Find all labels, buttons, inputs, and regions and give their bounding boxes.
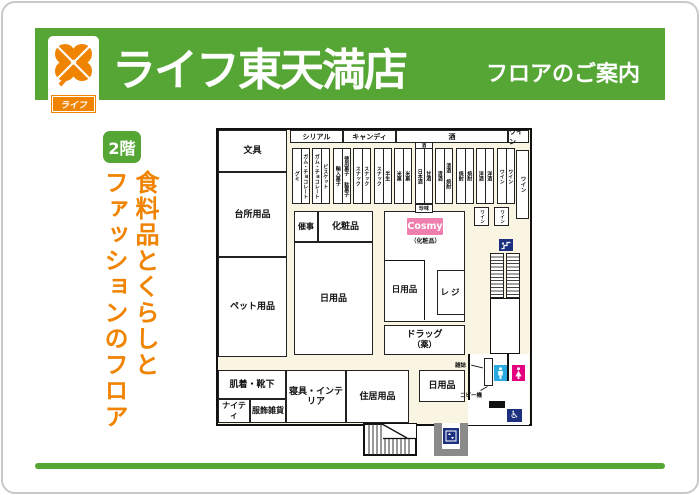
escalator-icon xyxy=(499,239,513,251)
magazine-label: 雑誌 xyxy=(455,361,466,369)
floor-tagline: 食料品とくらしと ファッションのフロア xyxy=(98,170,160,470)
room-household: 住居用品 xyxy=(346,370,409,423)
divider xyxy=(424,260,425,320)
aisle-biscuit: ガム・チョコレートビスケット xyxy=(312,148,330,204)
bottom-green-rule xyxy=(35,463,665,469)
elevator-wall xyxy=(434,423,442,456)
escalator-up xyxy=(506,253,520,298)
room-kitchenware: 台所用品 xyxy=(218,172,287,257)
shelf-wine-small-1: ワイン xyxy=(474,207,489,226)
topbar-sake: 酒 xyxy=(396,130,508,143)
topbar-candy: キャンディ xyxy=(343,130,396,143)
drug-label-line2: （薬） xyxy=(406,340,442,350)
aisle-rice-crackers: 米菓米菓 xyxy=(394,148,412,204)
tagline-line-2: ファッションのフロア xyxy=(98,170,129,470)
room-daily-goods-bottom: 日用品 xyxy=(419,370,465,402)
aisle-shochu: 焼酎焼酎 xyxy=(456,148,474,204)
wall-notch xyxy=(489,401,505,408)
escalator-landing xyxy=(490,298,520,354)
floor-guide-subtitle: フロアのご案内 xyxy=(486,56,640,88)
aisle-gum-chocolate: グミガム・チョコレート xyxy=(292,148,310,204)
room-drugstore: ドラッグ （薬） xyxy=(384,325,465,355)
room-fashion-goods: 服飾雑貨 xyxy=(250,399,286,423)
logo-wordmark: ライフ xyxy=(52,96,95,112)
clover-icon xyxy=(52,41,95,93)
aisle-sake-footer: 珍味 xyxy=(415,204,433,213)
topbar-wine: ワイン xyxy=(508,130,529,143)
aisle-sake: 日本酒甘酒 xyxy=(415,148,433,204)
room-nighty: ナイティ xyxy=(218,399,250,423)
cosmy-logo: Cosmy xyxy=(407,218,443,235)
aisle-western-liquor: 洋酒洋酒 xyxy=(476,148,494,204)
aisle-snack-2: スナック半生 xyxy=(374,148,392,204)
stairs xyxy=(363,423,417,456)
copier-label: コピー機 xyxy=(460,391,482,399)
store-title: ライフ東天満店 xyxy=(112,34,406,98)
room-daily-goods-big: 日用品 xyxy=(294,242,373,355)
room-bedding-interior: 寝具・インテリア xyxy=(286,370,346,423)
aisle-wine: ワインワイン xyxy=(497,148,515,204)
room-pet-goods: ペット用品 xyxy=(218,257,287,357)
room-daily-goods-mid: 日用品 xyxy=(385,260,424,320)
mens-toilet-icon xyxy=(494,365,507,381)
tagline-line-1: 食料品とくらしと xyxy=(129,170,160,470)
floor-plan: シリアル キャンディ 酒 ワイン 文具 台所用品 ペット用品 肌着・靴下 ナイテ… xyxy=(216,128,532,426)
escalator-down xyxy=(490,253,504,298)
wheelchair-icon: ♿ xyxy=(507,409,522,422)
room-cosmetics: 化粧品 xyxy=(318,211,373,242)
drug-label-line1: ドラッグ xyxy=(406,330,442,340)
cosmy-sublabel: （化粧品） xyxy=(385,237,466,247)
aisle-imported-sweets: 輸入菓子徳用菓子 駄菓子 xyxy=(333,148,351,204)
floor-badge: 2階 xyxy=(103,131,141,163)
room-stationery: 文具 xyxy=(218,130,287,172)
topbar-cereal: シリアル xyxy=(290,130,343,143)
shelf-wine-tall: ワイン xyxy=(516,150,529,219)
wall xyxy=(507,354,509,381)
room-register: レジ xyxy=(437,270,465,315)
elevator-wall xyxy=(442,449,460,456)
life-logo: ライフ xyxy=(48,36,99,116)
shelf-wine-small-2: ワイン xyxy=(494,207,509,226)
elevator-icon xyxy=(443,428,459,444)
floor-guide-poster: ライフ東天満店 フロアのご案内 ライフ 2階 食料品とくらしと ファッションのフ… xyxy=(0,0,700,495)
room-event-space: 催事 xyxy=(294,211,318,242)
magazine-rack xyxy=(484,358,493,386)
elevator-shaft xyxy=(434,423,468,456)
womens-toilet-icon xyxy=(512,365,525,381)
aisle-seishu: 清酒清酒 焼酎 xyxy=(435,148,453,204)
room-underwear-socks: 肌着・靴下 xyxy=(218,370,286,399)
cosmy-block: Cosmy （化粧品） 日用品 レジ xyxy=(384,211,465,322)
elevator-wall xyxy=(460,423,468,456)
aisle-snack-1: スナックスナック xyxy=(353,148,371,204)
